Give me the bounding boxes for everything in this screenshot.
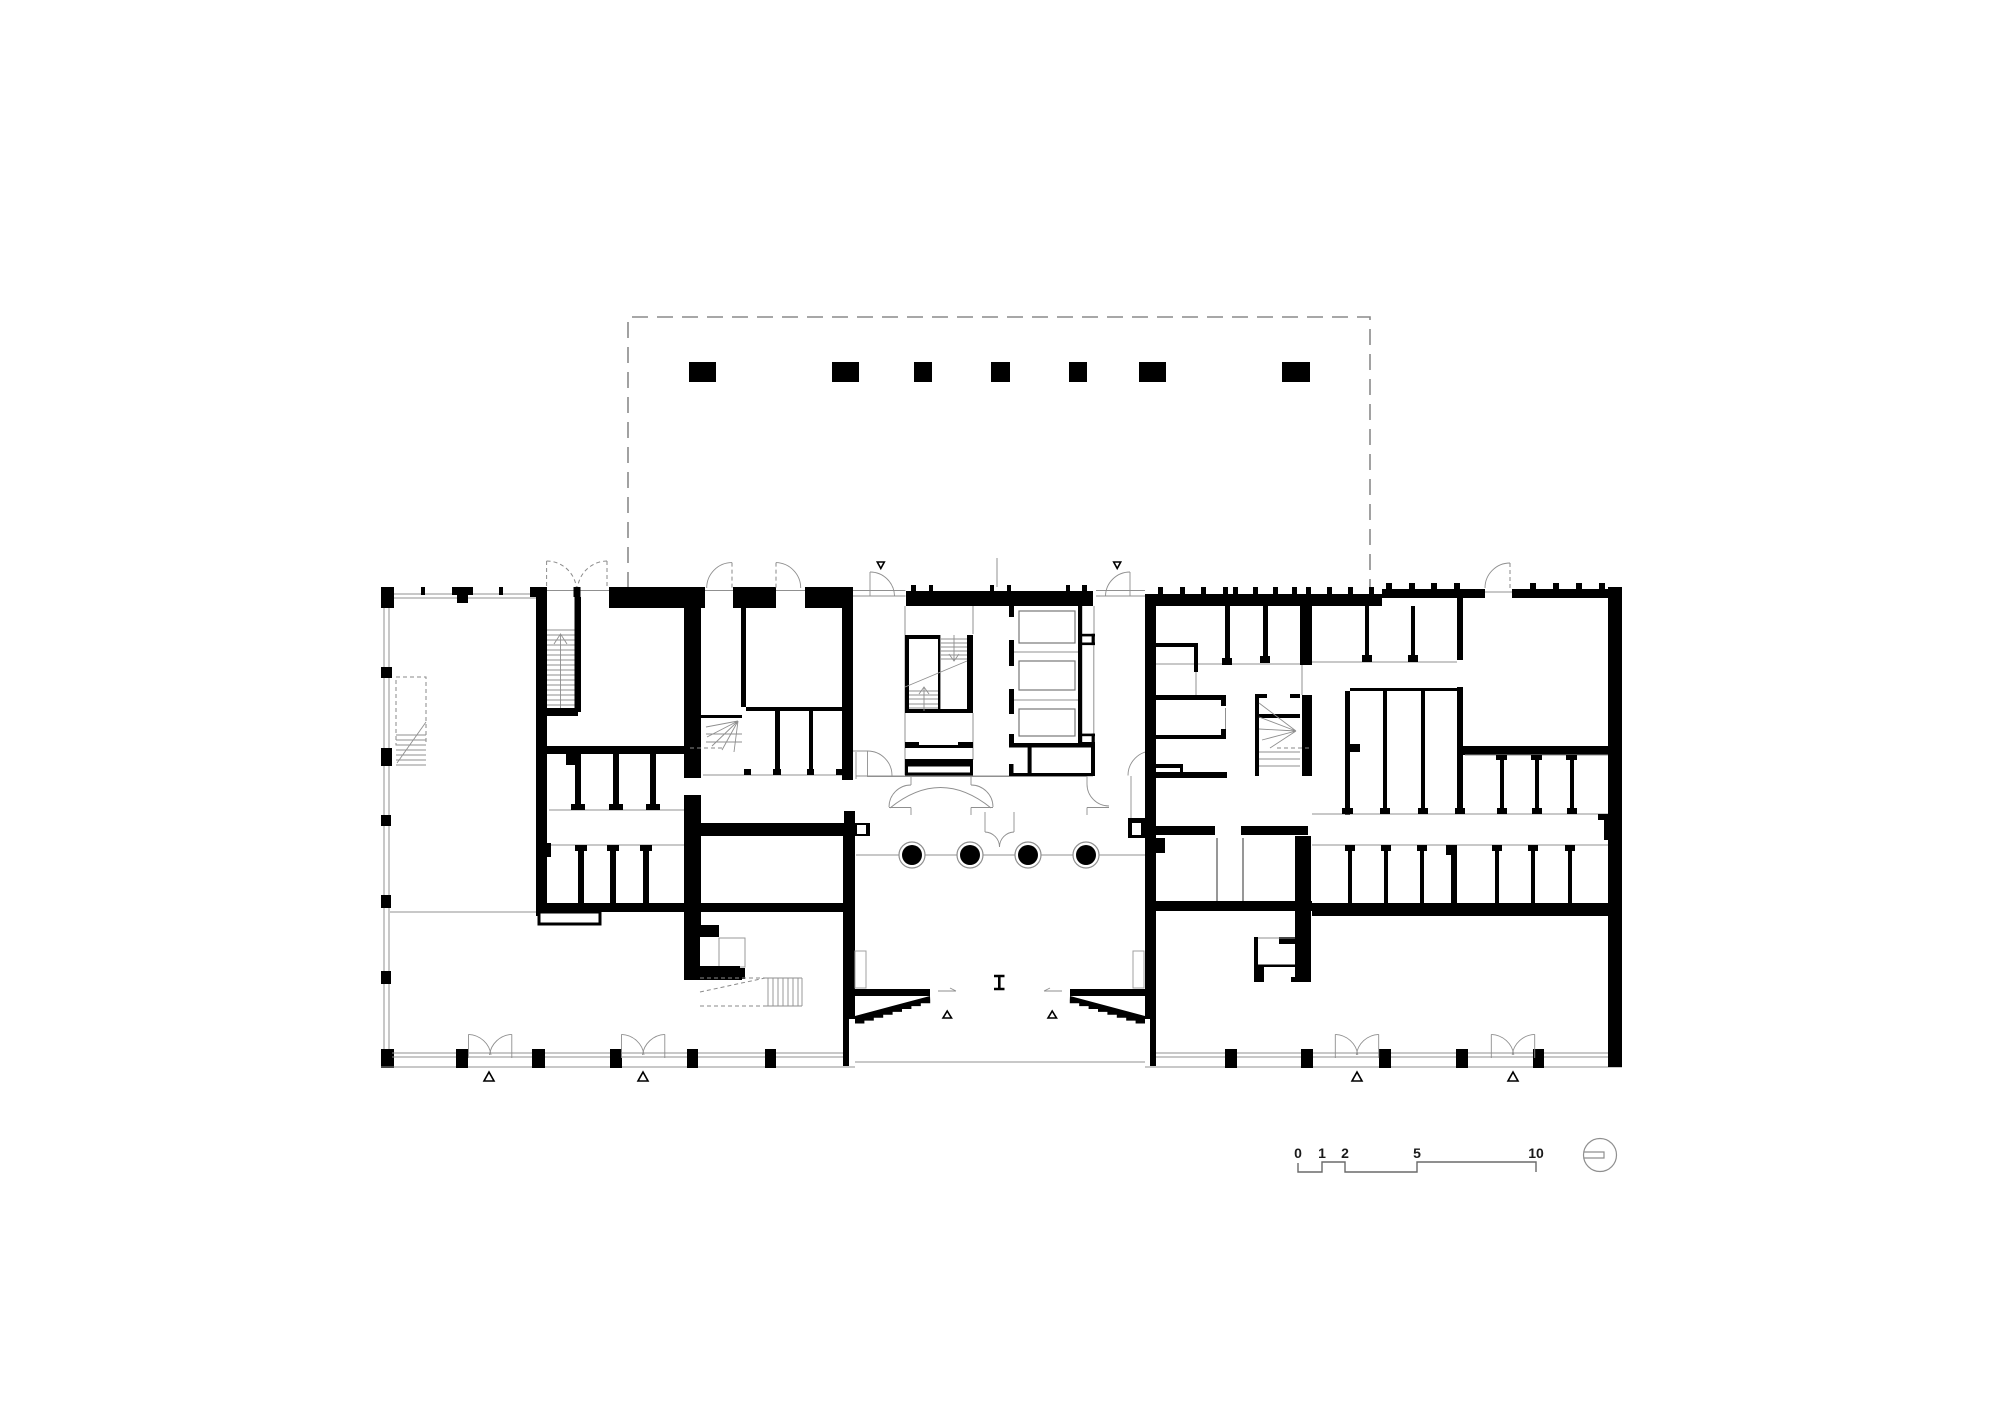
svg-text:5: 5 xyxy=(1413,1145,1421,1161)
svg-text:0: 0 xyxy=(1294,1145,1302,1161)
svg-text:10: 10 xyxy=(1528,1145,1544,1161)
svg-text:1: 1 xyxy=(1318,1145,1326,1161)
svg-text:2: 2 xyxy=(1341,1145,1349,1161)
